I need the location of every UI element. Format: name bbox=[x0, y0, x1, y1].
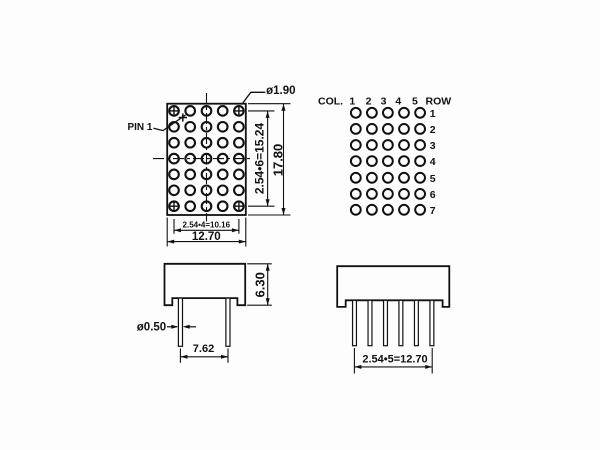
svg-text:7.62: 7.62 bbox=[193, 343, 214, 355]
svg-text:5: 5 bbox=[430, 173, 436, 185]
svg-text:6.30: 6.30 bbox=[252, 272, 267, 297]
svg-text:4: 4 bbox=[395, 95, 401, 107]
svg-text:4: 4 bbox=[430, 156, 436, 168]
svg-text:ø1.90: ø1.90 bbox=[266, 85, 295, 97]
svg-text:1: 1 bbox=[349, 95, 355, 107]
svg-text:2.54•5=12.70: 2.54•5=12.70 bbox=[362, 353, 427, 365]
svg-text:2.54•6=15.24: 2.54•6=15.24 bbox=[253, 123, 267, 195]
svg-text:6: 6 bbox=[430, 189, 436, 201]
svg-text:ROW: ROW bbox=[426, 95, 452, 107]
svg-text:2: 2 bbox=[366, 95, 372, 107]
svg-text:2.54•4=10.16: 2.54•4=10.16 bbox=[183, 221, 231, 230]
svg-text:COL.: COL. bbox=[318, 95, 343, 107]
svg-text:5: 5 bbox=[412, 95, 418, 107]
svg-text:7: 7 bbox=[430, 205, 436, 217]
svg-text:3: 3 bbox=[430, 140, 436, 152]
svg-text:17.80: 17.80 bbox=[270, 144, 285, 177]
svg-text:ø0.50: ø0.50 bbox=[137, 321, 166, 333]
svg-text:12.70: 12.70 bbox=[192, 231, 221, 243]
svg-text:1: 1 bbox=[430, 108, 436, 120]
svg-text:3: 3 bbox=[381, 95, 387, 107]
svg-text:PIN 1: PIN 1 bbox=[127, 122, 152, 133]
svg-text:2: 2 bbox=[430, 124, 436, 136]
